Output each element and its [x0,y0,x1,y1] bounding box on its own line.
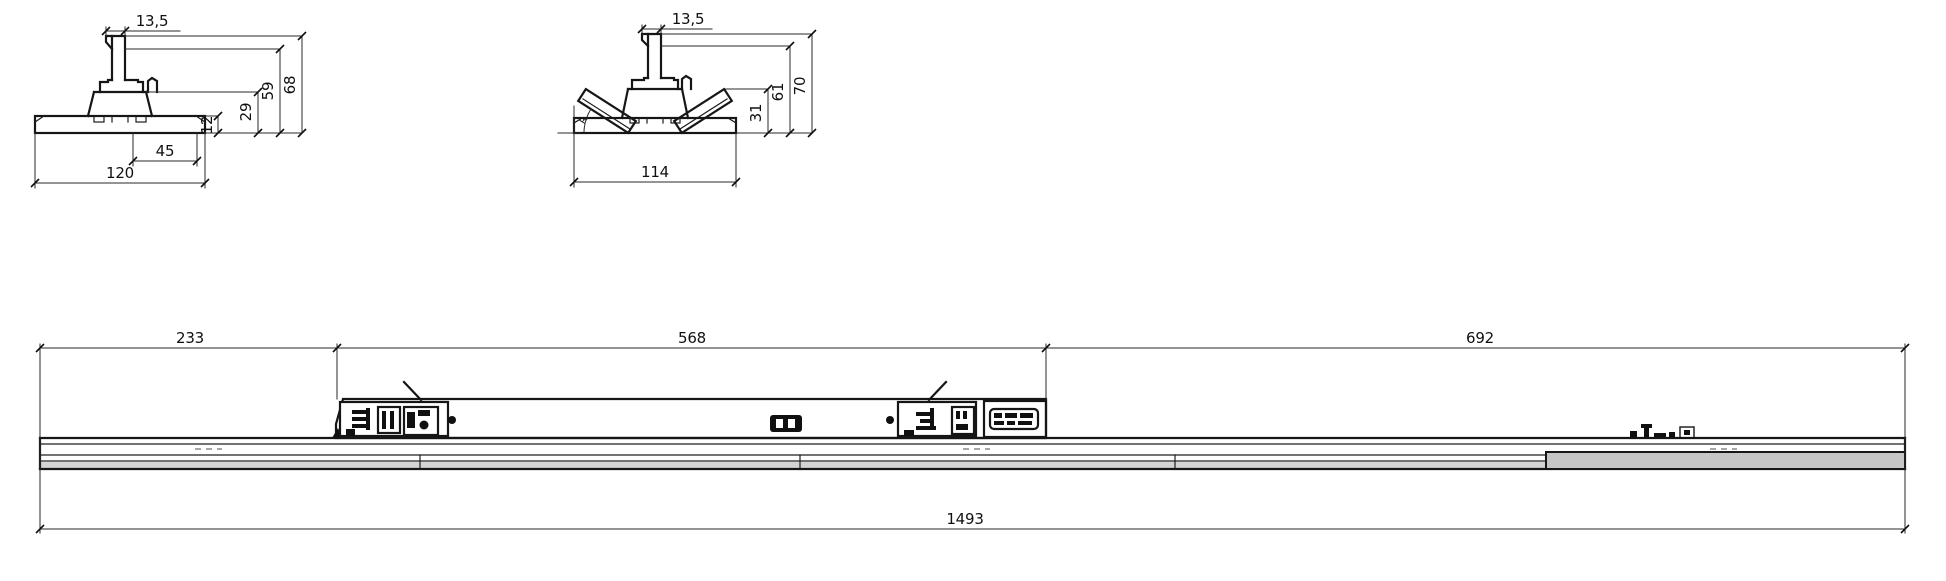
blank-cover-segment [1546,452,1905,469]
screw-right [886,416,894,424]
dim-rail-height: 12 [198,116,216,135]
screw-left [448,416,456,424]
winged-section-dimensions: 13,5 70 61 31 114 [570,10,816,187]
technical-drawing: 13,5 68 59 29 12 45 120 [0,0,1946,581]
stem-profile [106,36,125,80]
terminal-block-cluster-right [886,382,1046,437]
flat-section-dimensions: 13,5 68 59 29 12 45 120 [31,12,306,188]
terminal-block-cluster-left [340,382,456,436]
mounting-clips [1630,424,1694,438]
dim-stem-width: 13,5 [136,12,169,30]
dim-slot-width: 45 [156,142,175,160]
dim-base-width: 120 [106,164,134,182]
dim-overall-length: 1493 [946,510,983,528]
dim-base-width-2: 114 [641,163,669,181]
stem-profile-2 [642,34,661,78]
mid-connector [770,415,802,432]
wiring-lever-right [929,382,946,400]
dim-segment-left: 233 [176,329,204,347]
flat-section-view: 13,5 68 59 29 12 45 120 [31,12,306,188]
dim-total-height-2: 70 [791,77,809,96]
dim-stem-width-2: 13,5 [672,10,705,28]
side-view-overall-dimension: 1493 [36,510,1909,533]
side-view: 233 568 692 1493 [36,329,1909,533]
dim-adapter-height: 29 [237,103,255,122]
wiring-lever-left [404,382,421,400]
dim-segment-right: 692 [1466,329,1494,347]
rail-profile [40,438,1905,469]
dim-wing-height: 31 [747,104,765,123]
winged-section-view: R 13,5 70 61 31 114 [558,10,816,187]
rail-cross-section-2 [574,118,736,133]
drawing-sheet: 13,5 68 59 29 12 45 120 [0,0,1946,581]
dim-body-height: 59 [259,82,277,101]
dim-segment-middle: 568 [678,329,706,347]
dim-total-height: 68 [281,76,299,95]
rail-cross-section [35,116,205,133]
